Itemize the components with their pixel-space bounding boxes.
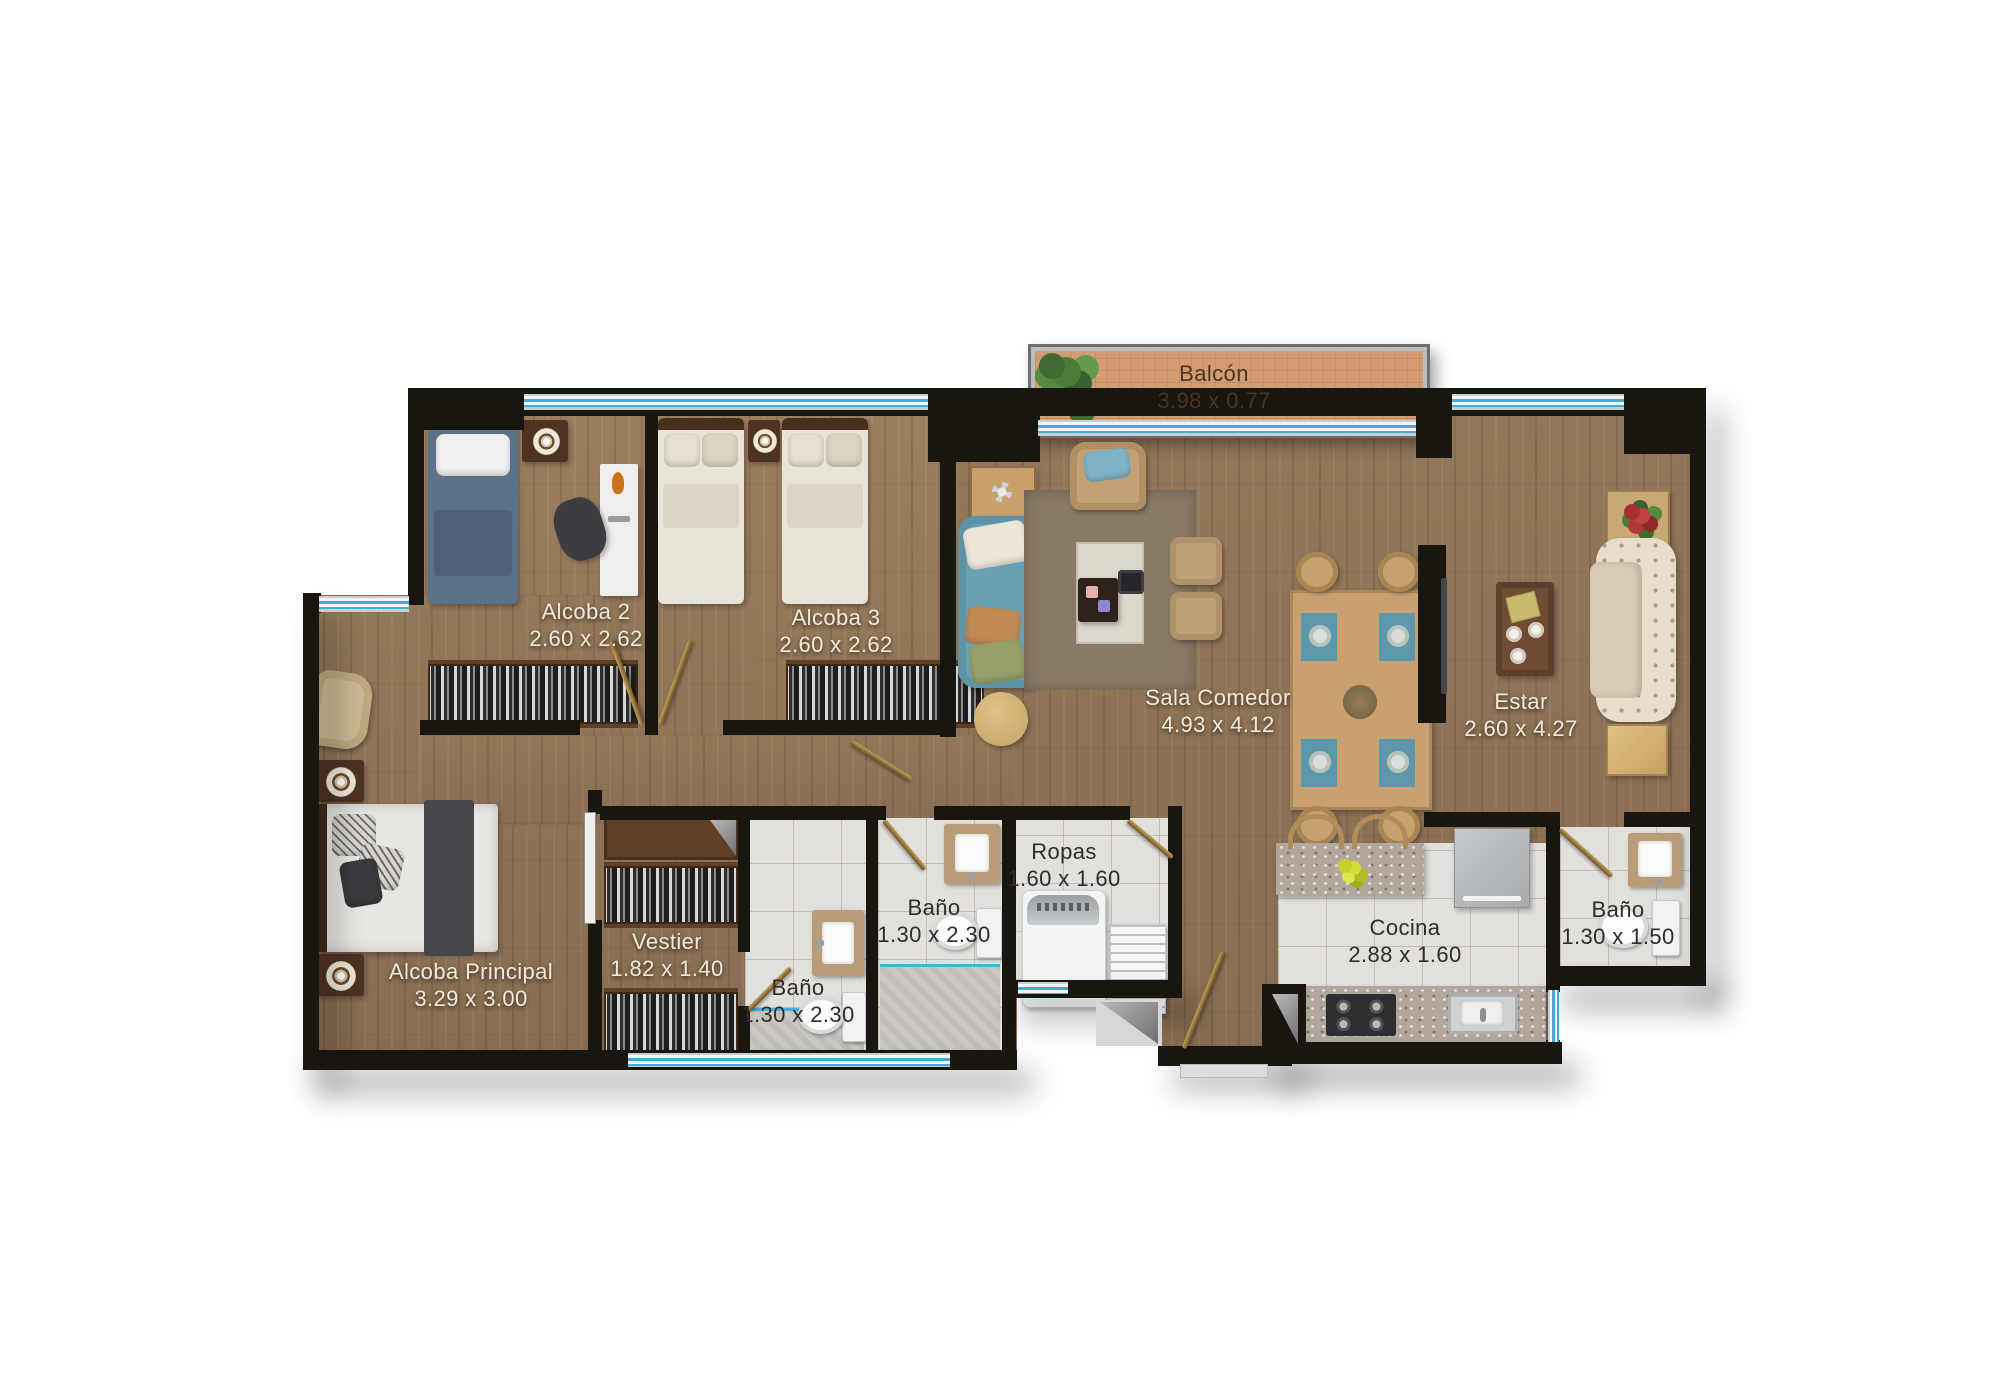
desk-decor — [612, 472, 624, 494]
plate-icon — [1387, 625, 1409, 647]
room-label-alcoba-principal: Alcoba Principal 3.29 x 3.00 — [389, 958, 553, 1012]
wall — [1016, 806, 1130, 820]
tufted-sofa — [1596, 538, 1676, 722]
window — [524, 394, 928, 410]
single-bed — [658, 418, 744, 604]
dining-chair — [1378, 552, 1420, 592]
cup-icon — [1528, 622, 1544, 638]
room-name: Alcoba Principal — [389, 958, 553, 985]
wall — [1690, 388, 1706, 986]
plate-icon — [1309, 625, 1331, 647]
sink-basin — [1638, 841, 1672, 877]
fruit-bowl-icon — [1338, 859, 1352, 873]
pillow — [962, 519, 1030, 571]
wall — [928, 388, 1040, 462]
room-name: Balcón — [1157, 360, 1270, 387]
wall — [1624, 812, 1690, 827]
double-bed — [316, 804, 498, 952]
centerpiece — [1343, 685, 1377, 719]
ottoman — [1170, 537, 1222, 585]
wall — [1168, 806, 1182, 982]
room-label-bano-principal: Baño 1.30 x 2.30 — [741, 974, 854, 1028]
room-name: Baño — [741, 974, 854, 1001]
armchair — [1070, 442, 1146, 510]
kitchen-sink — [1448, 994, 1518, 1034]
room-dims: 2.60 x 2.62 — [529, 625, 642, 652]
wall — [750, 806, 886, 820]
nightstand — [748, 420, 780, 462]
room-dims: 3.29 x 3.00 — [389, 985, 553, 1012]
sofa-seat — [1590, 562, 1642, 698]
wall — [866, 820, 878, 1052]
room-dims: 3.98 x 0.77 — [1157, 387, 1270, 414]
room-name: Alcoba 3 — [779, 604, 892, 631]
coffee-table — [1078, 578, 1118, 622]
faucet-icon — [1480, 1008, 1486, 1022]
shower-social — [880, 964, 1000, 1055]
kitchen-counter — [1296, 986, 1546, 1042]
room-dims: 2.60 x 4.27 — [1464, 715, 1577, 742]
cup-icon — [1510, 648, 1526, 664]
coffee-table — [1496, 582, 1554, 676]
faucet-icon — [1654, 877, 1662, 885]
master-door-leaf — [584, 812, 596, 924]
room-label-estar: Estar 2.60 x 4.27 — [1464, 688, 1577, 742]
washer-controls — [1037, 903, 1089, 911]
tray-item — [1098, 600, 1110, 612]
wall — [738, 820, 750, 952]
tray-item — [1086, 586, 1098, 598]
entry-threshold — [1180, 1064, 1268, 1078]
closet-clothes — [604, 988, 738, 1058]
wall — [408, 388, 424, 605]
plate-decor-icon — [752, 428, 778, 454]
faucet-icon — [968, 872, 976, 880]
room-label-ropas: Ropas 1.60 x 1.60 — [1007, 838, 1120, 892]
wall — [1424, 812, 1560, 827]
room-label-sala-comedor: Sala Comedor 4.93 x 4.12 — [1145, 684, 1290, 738]
dining-table — [1290, 590, 1432, 810]
wall — [1262, 1042, 1562, 1064]
camera-decor — [1118, 570, 1144, 594]
pillow — [436, 434, 510, 476]
room-name: Alcoba 2 — [529, 598, 642, 625]
plate-icon — [1387, 751, 1409, 773]
sink-vanity — [1628, 833, 1682, 887]
room-name: Baño — [877, 894, 990, 921]
plate-decor-icon — [325, 766, 357, 798]
room-name: Vestier — [610, 928, 723, 955]
tv-icon — [1441, 578, 1447, 694]
faucet-icon — [814, 940, 824, 946]
room-dims: 1.30 x 1.50 — [1561, 923, 1674, 950]
wall — [645, 720, 658, 735]
closet-clothes — [604, 862, 738, 928]
room-label-balcon: Balcón 3.98 x 0.77 — [1157, 360, 1270, 414]
bed-runner — [424, 800, 474, 956]
room-dims: 1.82 x 1.40 — [610, 955, 723, 982]
room-dims: 4.93 x 4.12 — [1145, 711, 1290, 738]
room-dims: 2.60 x 2.62 — [779, 631, 892, 658]
wall — [1546, 966, 1706, 986]
side-table — [1606, 724, 1668, 776]
room-name: Baño — [1561, 896, 1674, 923]
sink-vanity — [812, 910, 864, 976]
wall — [588, 920, 602, 1052]
pillow — [664, 433, 700, 467]
room-dims: 1.30 x 2.30 — [877, 921, 990, 948]
wall — [723, 720, 956, 735]
window — [628, 1053, 950, 1067]
single-bed — [782, 418, 868, 604]
cup-icon — [1506, 626, 1522, 642]
plate-decor-icon — [325, 960, 357, 992]
room-name: Estar — [1464, 688, 1577, 715]
room-label-vestier: Vestier 1.82 x 1.40 — [610, 928, 723, 982]
wall — [420, 720, 580, 735]
room-name: Cocina — [1348, 914, 1461, 941]
room-dims: 2.88 x 1.60 — [1348, 941, 1461, 968]
pillow — [967, 638, 1026, 685]
silver-decor-icon — [992, 482, 1012, 502]
balcony-sliding-door — [1038, 420, 1416, 436]
monitor — [608, 516, 630, 522]
window — [1452, 394, 1624, 410]
room-label-alcoba-2: Alcoba 2 2.60 x 2.62 — [529, 598, 642, 652]
wall — [600, 806, 750, 820]
room-name: Sala Comedor — [1145, 684, 1290, 711]
room-label-bano-servicio: Baño 1.30 x 1.50 — [1561, 896, 1674, 950]
pouf — [974, 692, 1028, 746]
window — [319, 596, 409, 612]
cooktop — [1326, 994, 1396, 1036]
blanket-fold — [434, 510, 512, 576]
dining-chair — [1296, 552, 1338, 592]
wall — [1546, 812, 1560, 992]
window — [1018, 982, 1068, 994]
fridge — [1454, 828, 1530, 908]
headboard — [782, 418, 868, 430]
balcony-plant-icon — [1039, 353, 1065, 379]
room-name: Ropas — [1007, 838, 1120, 865]
plate-icon — [1309, 751, 1331, 773]
headboard — [658, 418, 744, 430]
room-label-cocina: Cocina 2.88 x 1.60 — [1348, 914, 1461, 968]
sink-basin — [955, 834, 989, 872]
ottoman — [1170, 592, 1222, 640]
wardrobe — [428, 660, 638, 728]
blanket-fold — [663, 484, 739, 528]
wall — [940, 457, 956, 737]
nightstand — [522, 420, 568, 462]
window — [1548, 990, 1559, 1042]
pillow — [1082, 447, 1132, 483]
kitchen-island — [1276, 843, 1424, 895]
floor-plan: Balcón 3.98 x 0.77 Alcoba 2 2.60 x 2.62 … — [0, 0, 2000, 1400]
wall — [645, 416, 658, 722]
flower-pot-icon — [1624, 504, 1640, 520]
nightstand — [316, 760, 364, 802]
wall — [303, 593, 319, 1070]
fridge-handle — [1463, 896, 1521, 901]
pillow — [702, 433, 738, 467]
sink-basin — [822, 922, 854, 964]
plate-decor-icon — [532, 427, 561, 456]
room-label-alcoba-3: Alcoba 3 2.60 x 2.62 — [779, 604, 892, 658]
wall — [1416, 388, 1452, 458]
pillow — [338, 857, 383, 909]
room-label-bano-social: Baño 1.30 x 2.30 — [877, 894, 990, 948]
single-bed-blue — [428, 418, 518, 604]
pillow — [788, 433, 824, 467]
nightstand — [316, 954, 364, 996]
wall — [408, 388, 524, 430]
pillow — [826, 433, 862, 467]
exterior-mask — [1558, 986, 1728, 1072]
room-dims: 1.30 x 2.30 — [741, 1001, 854, 1028]
sink-vanity — [944, 824, 1000, 884]
blanket-fold — [787, 484, 863, 528]
room-dims: 1.60 x 1.60 — [1007, 865, 1120, 892]
